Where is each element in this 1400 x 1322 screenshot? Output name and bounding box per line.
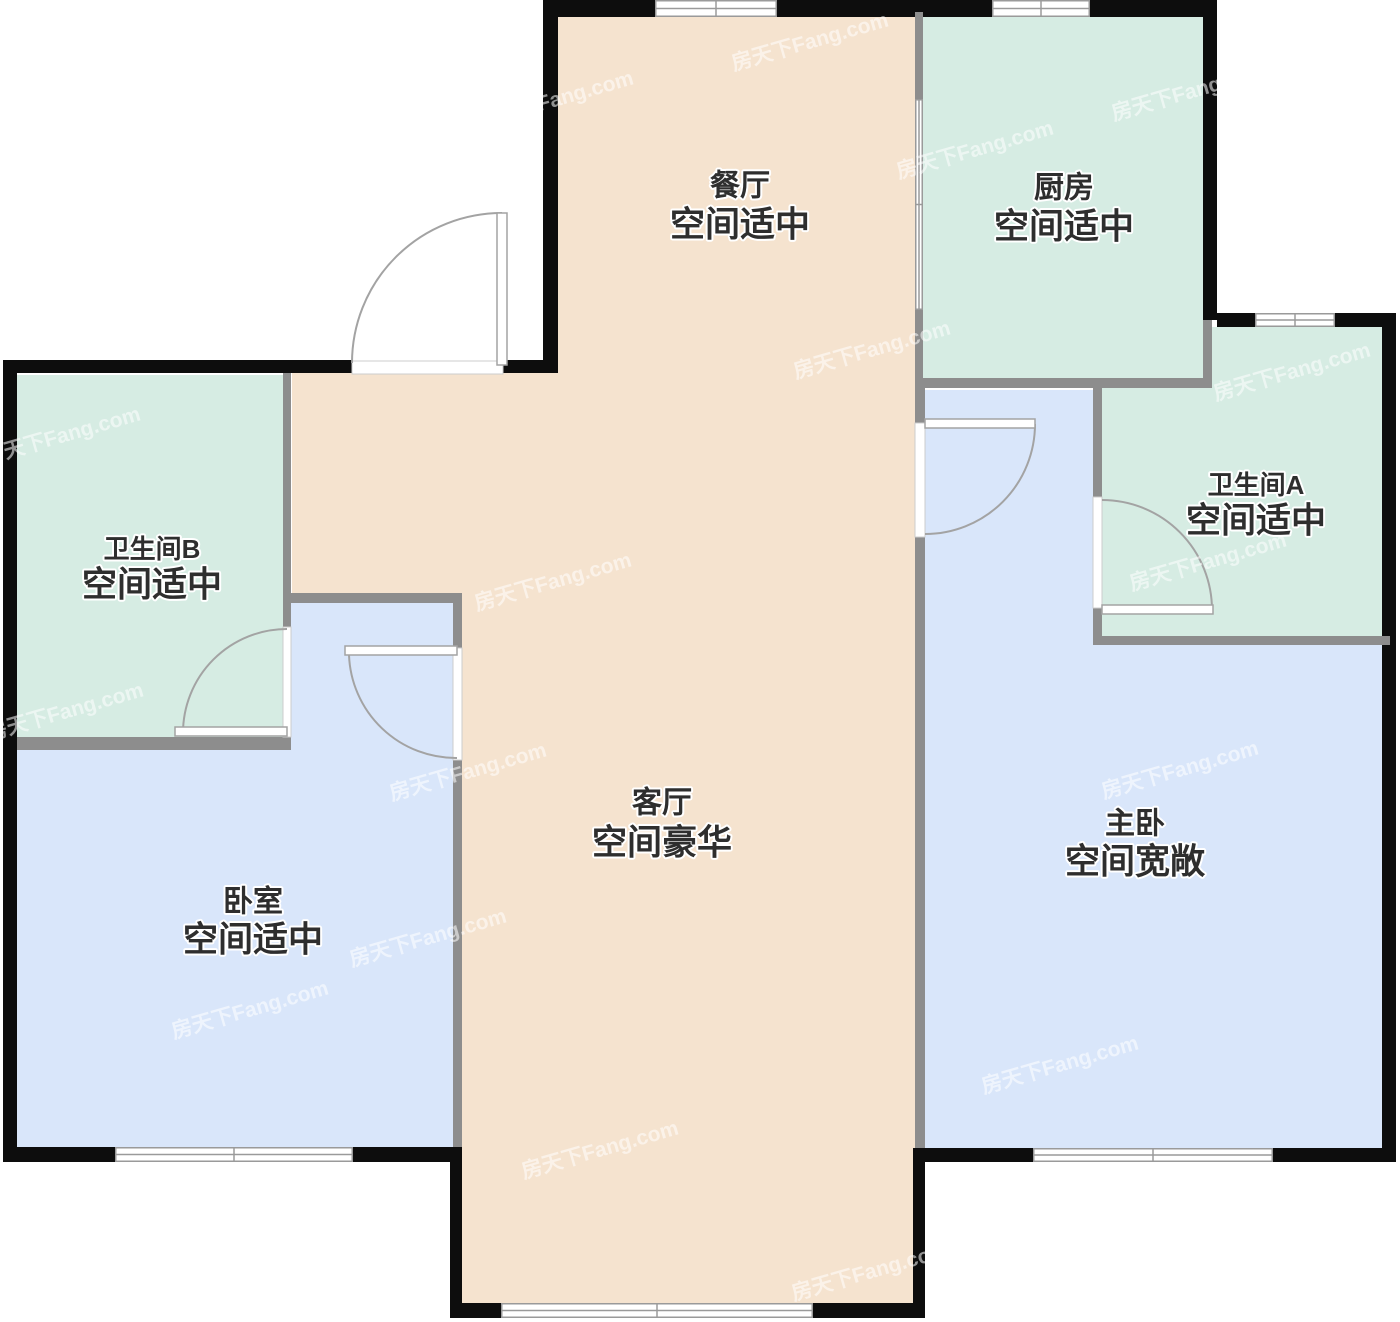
bathroom-a-kitchen-side-wall: [1203, 320, 1212, 388]
master-left-wall-lower: [915, 537, 925, 1148]
bathroom-a-door-leaf: [1102, 605, 1213, 614]
dining-window: [655, 0, 777, 17]
watermark-text: 房天下Fang.com: [124, 258, 287, 326]
bathroom-b-door-opening: [283, 627, 291, 737]
bedroom-bottom-wall-left: [3, 1147, 115, 1162]
bathroom-a-top-wall-left: [1217, 313, 1255, 327]
master-window: [1033, 1148, 1273, 1162]
right-wall: [1382, 313, 1396, 1162]
bedroom-right-wall-upper: [453, 593, 462, 648]
bathroom-a-window: [1255, 313, 1335, 327]
bedroom-right-wall-lower: [453, 760, 462, 1147]
bathroom-a-bottom-wall: [1093, 636, 1390, 645]
dining-kitchen-wall-upper: [915, 12, 923, 99]
entry-door-leaf: [497, 213, 507, 365]
balcony-right-wall: [913, 1148, 925, 1318]
room-name-bathroom-b: 卫生间B: [104, 534, 201, 564]
dining-top-wall-left: [543, 0, 655, 17]
kitchen-window: [992, 0, 1090, 17]
room-name-kitchen: 厨房: [1034, 172, 1094, 205]
room-spec-bathroom-b: 空间适中: [82, 566, 222, 605]
left-wall: [3, 362, 17, 1162]
kitchen-top-wall-left: [922, 0, 992, 17]
bedroom-window: [115, 1147, 353, 1162]
living-floor: [462, 593, 915, 1303]
master-bottom-wall-right: [1273, 1148, 1396, 1162]
balcony-bottom-wall-right: [813, 1303, 925, 1318]
kitchen-pass-window: [915, 99, 923, 310]
dining-left-wall: [543, 0, 558, 373]
room-spec-bedroom: 空间适中: [183, 921, 323, 960]
kitchen-bottom-wall: [915, 378, 1212, 388]
bedroom-top-wall: [291, 593, 462, 603]
bedroom-door-leaf: [345, 646, 457, 655]
kitchen-top-wall-right: [1090, 0, 1217, 17]
room-name-bedroom: 卧室: [223, 885, 283, 919]
room-spec-living: 空间豪华: [592, 824, 732, 863]
room-spec-bathroom-a: 空间适中: [1186, 502, 1326, 541]
bathroom-b-bottom-wall: [17, 737, 291, 750]
room-name-bathroom-a: 卫生间A: [1208, 470, 1305, 500]
room-name-dining: 餐厅: [710, 170, 770, 203]
balcony-left-wall: [450, 1147, 462, 1318]
room-name-living: 客厅: [632, 786, 692, 820]
room-spec-master: 空间宽敞: [1065, 842, 1206, 882]
bathroom-b-right-wall-upper: [283, 373, 291, 627]
bathroom-b-door-leaf: [175, 727, 287, 736]
bedroom-bottom-wall-right: [353, 1147, 462, 1162]
entry-top-wall-left: [3, 360, 352, 373]
master-bedroom-door-leaf: [925, 419, 1035, 428]
master-left-wall-upper: [915, 385, 925, 423]
floor-plan-page: 房天下Fang.com房天下Fang.com房天下Fang.com房天下Fang…: [0, 0, 1400, 1322]
room-name-master: 主卧: [1105, 808, 1165, 841]
room-spec-dining: 空间适中: [670, 206, 810, 245]
kitchen-right-wall: [1203, 0, 1217, 320]
master-bedroom-door-opening: [915, 423, 925, 537]
bathroom-a-door-opening: [1093, 497, 1102, 608]
living-window: [501, 1303, 813, 1318]
master-bottom-wall-left: [922, 1148, 1033, 1162]
dining-top-wall-right: [777, 0, 922, 17]
bedroom-door-opening: [453, 648, 462, 760]
entry-door-swing-arc: [352, 213, 502, 363]
bathroom-a-left-wall-upper: [1093, 388, 1102, 497]
floor-plan: 房天下Fang.com房天下Fang.com房天下Fang.com房天下Fang…: [0, 0, 1400, 1322]
room-spec-kitchen: 空间适中: [994, 208, 1134, 247]
entry-door: [352, 213, 507, 374]
entry-door-opening: [352, 361, 503, 374]
